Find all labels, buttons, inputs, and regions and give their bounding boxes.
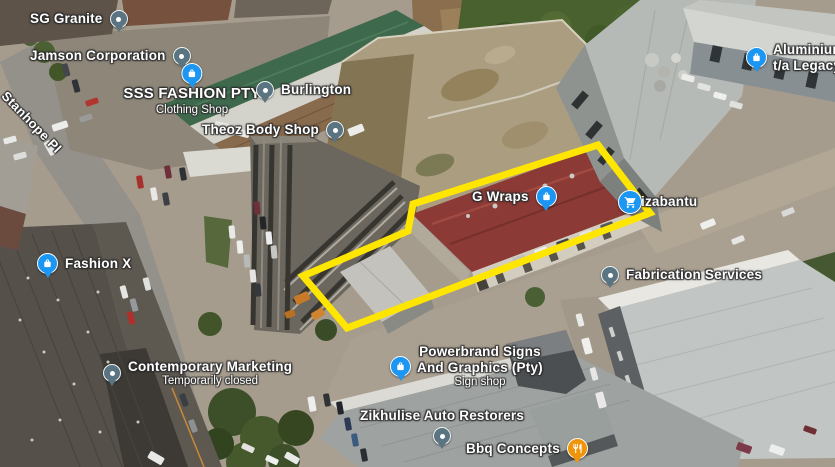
shopping-bag-pin-icon[interactable] [536, 186, 557, 207]
poi-pin-icon[interactable] [601, 266, 619, 284]
pin-dot [333, 128, 338, 133]
place-name: Contemporary Marketing [128, 359, 292, 374]
shopping-cart-pin-icon[interactable] [618, 190, 642, 214]
poi-pin-icon[interactable] [326, 121, 344, 139]
place-name-line-1: Aluminium [773, 42, 835, 57]
pin-tail [542, 205, 550, 211]
place-name: izabantu [641, 194, 697, 209]
place-subtitle: Sign shop [454, 376, 505, 389]
place-label-fashion-x[interactable]: Fashion X [37, 253, 131, 274]
pin-tail [397, 375, 405, 381]
shopping-bag-pin-icon[interactable] [746, 47, 767, 68]
place-name-line-1: Powerbrand Signs [419, 344, 541, 359]
shopping-bag-glyph [751, 52, 762, 63]
pin-dot [608, 273, 613, 278]
place-name-line-2: And Graphics (Pty) [417, 360, 543, 375]
pin-dot [116, 17, 121, 22]
shopping-bag-glyph [42, 258, 53, 269]
poi-pin-icon[interactable] [103, 364, 121, 382]
place-label-aluminium-legacy[interactable]: Aluminium t/a Legacy [746, 42, 835, 73]
shopping-bag-glyph [541, 191, 552, 202]
place-name: Jamson Corporation [30, 48, 166, 63]
place-label-burlington[interactable]: Burlington [256, 81, 351, 99]
shopping-bag-pin-icon[interactable] [37, 253, 58, 274]
place-subtitle: Temporarily closed [162, 375, 258, 388]
pin-tail [331, 137, 339, 143]
poi-pin-icon[interactable] [433, 427, 451, 445]
place-name: Burlington [281, 82, 351, 97]
place-name: Fashion X [65, 256, 131, 271]
place-label-fabrication-services[interactable]: Fabrication Services [601, 266, 762, 284]
shopping-bag-glyph [186, 68, 197, 79]
place-name: Fabrication Services [626, 267, 762, 282]
pin-dot [440, 434, 445, 439]
pin-tail [188, 82, 196, 88]
pin-tail [115, 26, 123, 32]
place-name: Bbq Concepts [466, 441, 560, 456]
place-label-powerbrand-signs[interactable]: Powerbrand Signs And Graphics (Pty) Sign… [390, 344, 543, 389]
pin-dot [179, 54, 184, 59]
pin-tail [44, 272, 52, 278]
restaurant-pin-icon[interactable] [567, 438, 588, 459]
pin-dot [110, 371, 115, 376]
place-name: SSS FASHION PTY [123, 86, 260, 103]
place-label-izabantu[interactable]: izabantu [618, 190, 697, 214]
place-label-contemporary-marketing[interactable]: Contemporary Marketing Temporarily close… [103, 359, 292, 388]
poi-pin-icon[interactable] [110, 10, 128, 28]
poi-pin-icon[interactable] [256, 81, 274, 99]
shopping-cart-glyph [624, 196, 637, 209]
place-subtitle: Clothing Shop [156, 104, 228, 117]
shopping-bag-pin-icon[interactable] [390, 356, 411, 377]
shopping-bag-glyph [395, 361, 406, 372]
pin-tail [573, 457, 581, 463]
place-name: SG Granite [30, 11, 103, 26]
pin-tail [438, 443, 446, 449]
place-name-line-2: t/a Legacy [773, 58, 835, 73]
satellite-map-view[interactable]: Stanhope Pl SG Granite Jamson Corporatio… [0, 0, 835, 467]
place-name: G Wraps [472, 189, 529, 204]
place-label-sg-granite[interactable]: SG Granite [30, 10, 128, 28]
pin-tail [606, 282, 614, 288]
place-name: Theoz Body Shop [202, 122, 319, 137]
pin-dot [263, 88, 268, 93]
place-label-theoz-body-shop[interactable]: Theoz Body Shop [202, 121, 344, 139]
pin-tail [261, 97, 269, 103]
place-name: Zikhulise Auto Restorers [360, 408, 524, 423]
shopping-bag-pin-icon[interactable] [181, 63, 202, 84]
pin-tail [108, 380, 116, 386]
pin-tail [753, 66, 761, 72]
fork-knife-glyph [572, 443, 583, 454]
place-label-bbq-concepts[interactable]: Bbq Concepts [466, 438, 588, 459]
place-label-sss-fashion[interactable]: SSS FASHION PTY Clothing Shop [123, 63, 260, 116]
place-label-g-wraps[interactable]: G Wraps [472, 186, 557, 207]
